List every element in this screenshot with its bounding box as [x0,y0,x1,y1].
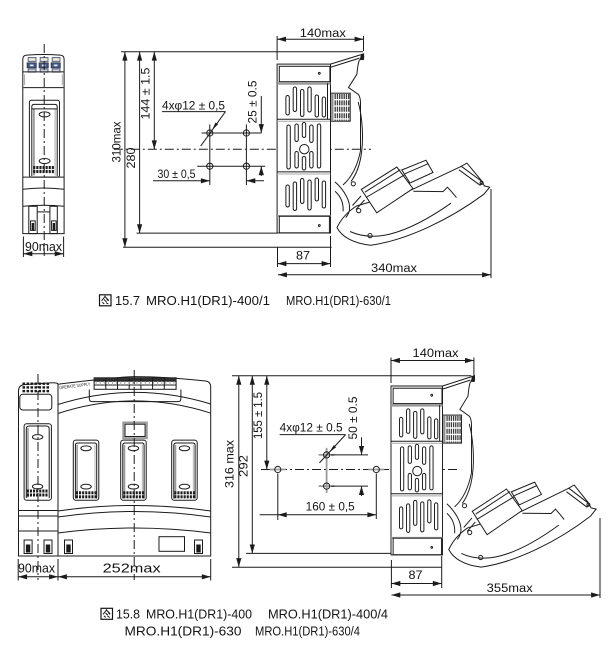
svg-text:144 ± 1.5: 144 ± 1.5 [141,68,153,120]
svg-text:252max: 252max [103,561,162,576]
svg-text:280: 280 [126,148,138,169]
svg-text:50 ± 0.5: 50 ± 0.5 [348,397,360,440]
svg-text:MRO.H1(DR1)-400/1: MRO.H1(DR1)-400/1 [146,294,270,308]
svg-text:MRO.H1(DR1)-630/4: MRO.H1(DR1)-630/4 [255,625,360,639]
svg-text:4xφ12 ± 0,5: 4xφ12 ± 0,5 [162,100,225,112]
svg-text:90max: 90max [18,561,55,576]
svg-text:MRO.H1(DR1)-630: MRO.H1(DR1)-630 [125,625,242,639]
svg-text:292: 292 [239,455,251,477]
svg-text:140max: 140max [413,348,459,360]
svg-text:90max: 90max [25,239,62,254]
svg-text:87: 87 [296,250,310,262]
svg-text:340max: 340max [371,263,417,275]
svg-text:MRO.H1(DR1)-400/4: MRO.H1(DR1)-400/4 [268,608,388,622]
svg-text:30 ± 0,5: 30 ± 0,5 [158,169,196,181]
svg-text:MRO.H1(DR1)-630/1: MRO.H1(DR1)-630/1 [286,294,391,308]
svg-text:87: 87 [409,570,423,582]
svg-text:155 ± 1.5: 155 ± 1.5 [253,392,265,439]
svg-text:355max: 355max [487,583,533,595]
svg-text:316 max: 316 max [225,440,237,488]
svg-text:25 ± 0.5: 25 ± 0.5 [248,81,260,124]
svg-text:15.7: 15.7 [115,294,140,308]
svg-text:160 ± 0,5: 160 ± 0,5 [306,502,355,514]
svg-text:4xφ12 ± 0.5: 4xφ12 ± 0.5 [280,422,343,434]
svg-text:MRO.H1(DR1)-400: MRO.H1(DR1)-400 [146,608,252,622]
svg-text:15.8: 15.8 [116,608,140,622]
svg-text:140max: 140max [300,28,346,40]
svg-text:310max: 310max [111,121,123,162]
